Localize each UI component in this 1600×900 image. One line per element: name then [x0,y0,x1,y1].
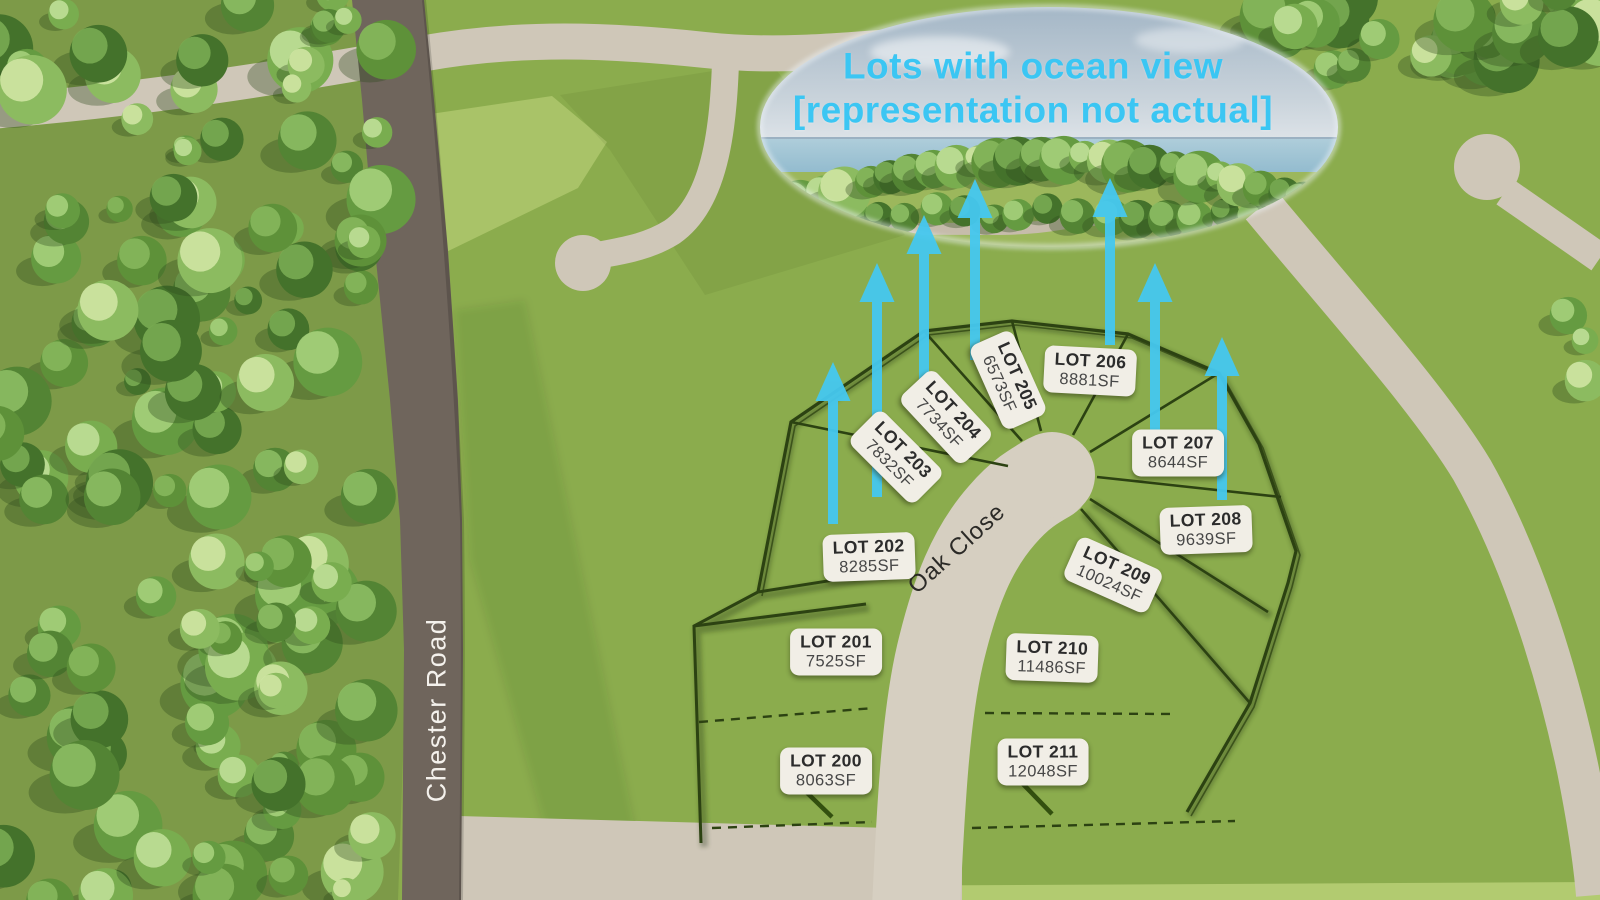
lot-label-202: LOT 202 8285SF [822,532,915,582]
lot-name: LOT 202 [832,536,904,558]
west-cul-de-sac [555,235,611,291]
lot-label-211: LOT 211 12048SF [998,738,1089,785]
lot-name: LOT 210 [1016,637,1088,659]
street-label-chester-road: Chester Road [422,618,453,803]
oak-close-bulb [1009,432,1095,518]
callout-title: Lots with ocean view [representation not… [793,45,1273,134]
lot-label-208: LOT 208 9639SF [1159,505,1252,555]
lot-area: 8644SF [1142,453,1214,471]
callout-title-line1: Lots with ocean view [793,45,1273,89]
lot-area: 9639SF [1170,529,1242,550]
lot-label-210: LOT 210 11486SF [1005,633,1098,683]
callout-title-line2: [representation not actual] [793,89,1273,133]
lot-label-206: LOT 206 8881SF [1043,345,1137,397]
lot-area: 11486SF [1015,657,1087,678]
lot-name: LOT 207 [1142,433,1214,453]
lot-label-201: LOT 201 7525SF [790,628,882,675]
lot-area: 8881SF [1053,369,1126,391]
ne-cul-de-sac [1454,134,1520,200]
lot-area: 8285SF [833,556,905,577]
lot-label-207: LOT 207 8644SF [1132,429,1224,476]
lot-name: LOT 211 [1008,742,1079,762]
lot-area: 8063SF [790,771,862,789]
lot-area: 7525SF [800,652,872,670]
site-plan-map: Chester Road Oak Close Lots with ocean v… [0,0,1600,900]
lot-area: 12048SF [1008,762,1079,780]
lot-label-200: LOT 200 8063SF [780,747,872,794]
lot-name: LOT 208 [1169,509,1241,531]
lot-name: LOT 200 [790,751,862,771]
lot-name: LOT 201 [800,632,872,652]
